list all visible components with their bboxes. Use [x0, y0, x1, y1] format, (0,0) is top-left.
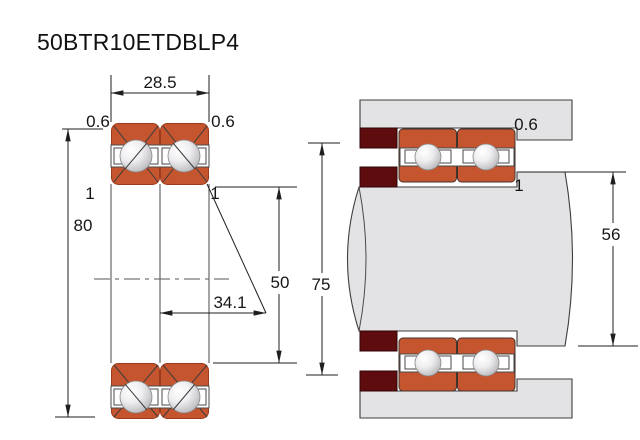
dim-pair-width: 28.5 — [111, 73, 209, 122]
mounted-bearing-top — [399, 129, 515, 182]
shaft — [348, 172, 573, 346]
inner-spacer-top — [360, 167, 397, 187]
ball — [415, 144, 441, 170]
dim-outer-diameter-label: 80 — [74, 216, 93, 235]
inner-spacer-bottom — [360, 331, 397, 351]
dim-pair-width-label: 28.5 — [143, 73, 176, 92]
bearing-face-lines — [111, 184, 209, 363]
dim-bore-diameter: 50 — [213, 187, 297, 363]
left-view-cross-section: 28.5 0.6 0.6 80 1 1 50 34.1 — [55, 73, 297, 419]
technical-drawing-page: 50BTR10ETDBLP4 — [0, 0, 640, 440]
dim-housing-shoulder: 75 — [306, 143, 340, 375]
outer-spacer-bottom — [360, 371, 397, 391]
ball — [473, 350, 499, 376]
ball — [415, 350, 441, 376]
top-bearing-pair — [111, 124, 209, 185]
dim-outer-diameter: 80 — [55, 129, 103, 417]
dim-load-center-label: 34.1 — [213, 293, 246, 312]
dim-chamfer-inner-left-label: 1 — [85, 184, 94, 203]
bearing-technical-drawing: 50BTR10ETDBLP4 — [0, 0, 640, 440]
dim-bore-diameter-label: 50 — [271, 273, 290, 292]
drawing-title: 50BTR10ETDBLP4 — [37, 29, 239, 55]
right-view-mounting: 0.6 1 75 56 — [306, 100, 638, 418]
dim-load-center: 34.1 — [160, 184, 266, 313]
ball — [473, 144, 499, 170]
dim-housing-fillet-label: 0.6 — [514, 115, 538, 134]
dim-chamfer-outer-right-label: 0.6 — [211, 112, 235, 131]
bottom-bearing-pair — [111, 364, 209, 419]
dim-housing-shoulder-label: 75 — [312, 275, 331, 294]
mounted-bearing-bottom — [399, 338, 515, 391]
dim-shaft-fillet-label: 1 — [514, 176, 523, 195]
dim-chamfer-outer-left-label: 0.6 — [86, 112, 110, 131]
dim-shaft-shoulder-label: 56 — [602, 225, 621, 244]
outer-spacer-top — [360, 128, 397, 148]
